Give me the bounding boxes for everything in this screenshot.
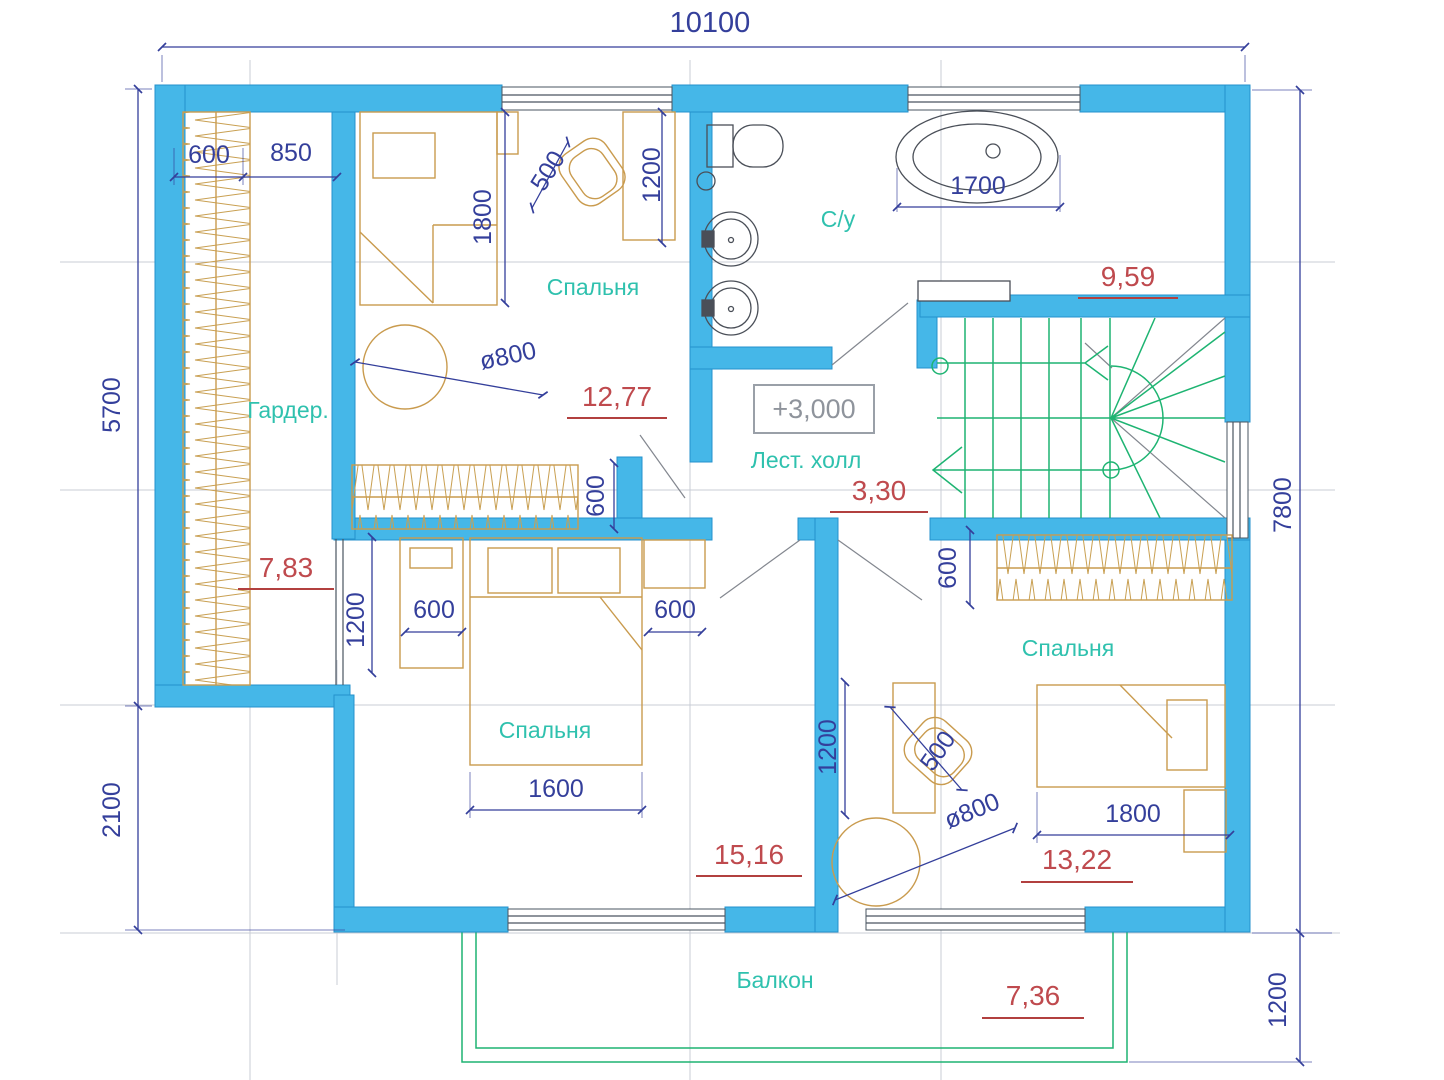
- floor-plan: 10100 5700 2100 7800 1200 600 850 1800 5…: [0, 0, 1444, 1080]
- round-table-right: [832, 818, 920, 906]
- bathroom-shelf: [918, 281, 1010, 301]
- staircase: [932, 318, 1225, 518]
- nightstand-top-left: [497, 112, 518, 154]
- nightstand-bottom: [644, 540, 705, 588]
- bathtub: [896, 111, 1058, 203]
- round-table-top-left: [363, 325, 447, 409]
- chair-right: [898, 711, 979, 791]
- plan-drawing: [0, 0, 1444, 1080]
- elevation-mark: +3,000: [753, 384, 875, 434]
- balcony-railing: [462, 932, 1127, 1062]
- nightstand-right: [1184, 790, 1226, 852]
- desk-right: [893, 683, 935, 813]
- stair-walk-arrow: [933, 447, 1111, 493]
- bathroom-fixtures: [697, 111, 1058, 335]
- bed-bottom: [470, 538, 642, 765]
- chair-top-left: [553, 132, 632, 212]
- bed-top-left: [360, 112, 497, 305]
- walls: [155, 85, 1250, 932]
- desk-top-left: [623, 112, 675, 240]
